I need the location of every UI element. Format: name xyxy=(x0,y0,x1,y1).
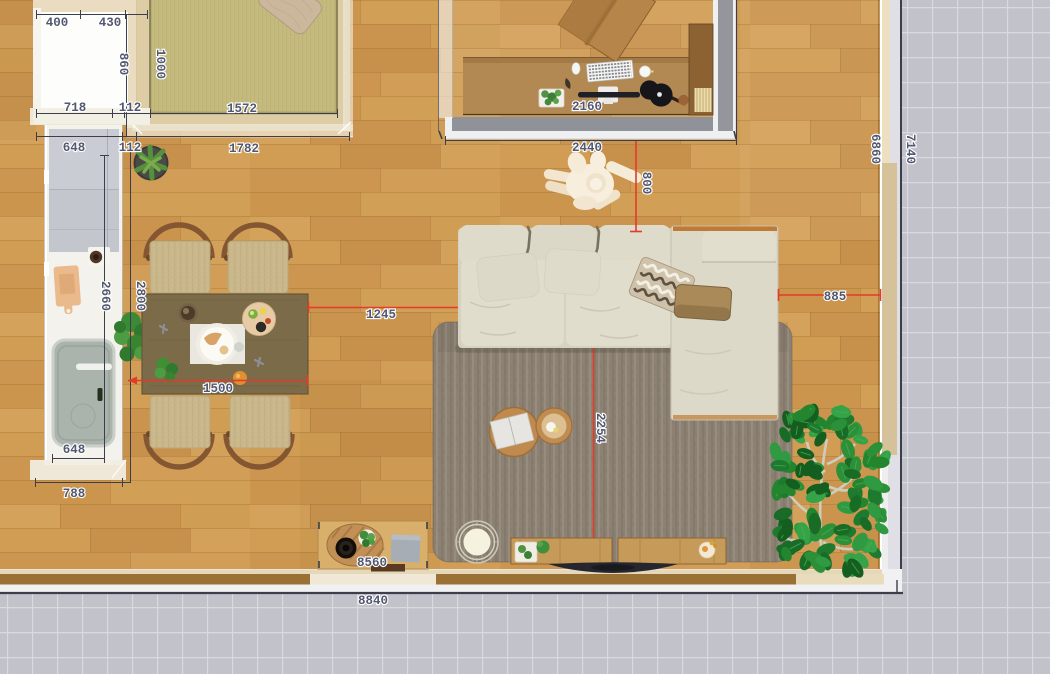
svg-text:112: 112 xyxy=(119,101,142,115)
svg-text:7140: 7140 xyxy=(903,134,917,164)
svg-text:1782: 1782 xyxy=(229,142,259,156)
svg-text:8840: 8840 xyxy=(358,594,388,608)
svg-text:2660: 2660 xyxy=(98,281,112,311)
svg-text:885: 885 xyxy=(824,290,847,304)
svg-text:2160: 2160 xyxy=(572,100,602,114)
svg-text:1500: 1500 xyxy=(203,382,233,396)
svg-text:718: 718 xyxy=(64,101,87,115)
svg-text:788: 788 xyxy=(63,487,86,501)
svg-text:2800: 2800 xyxy=(133,281,147,311)
svg-text:430: 430 xyxy=(99,16,122,30)
svg-text:1000: 1000 xyxy=(153,49,167,79)
svg-text:8560: 8560 xyxy=(357,556,387,570)
svg-text:400: 400 xyxy=(46,16,69,30)
svg-text:1572: 1572 xyxy=(227,102,257,116)
svg-text:800: 800 xyxy=(639,172,653,195)
svg-text:6860: 6860 xyxy=(868,134,882,164)
svg-text:2440: 2440 xyxy=(572,141,602,155)
svg-text:112: 112 xyxy=(119,141,142,155)
svg-text:2254: 2254 xyxy=(593,413,607,444)
svg-text:860: 860 xyxy=(116,53,130,76)
svg-text:648: 648 xyxy=(63,141,86,155)
svg-text:648: 648 xyxy=(63,443,86,457)
svg-text:1245: 1245 xyxy=(366,308,396,322)
